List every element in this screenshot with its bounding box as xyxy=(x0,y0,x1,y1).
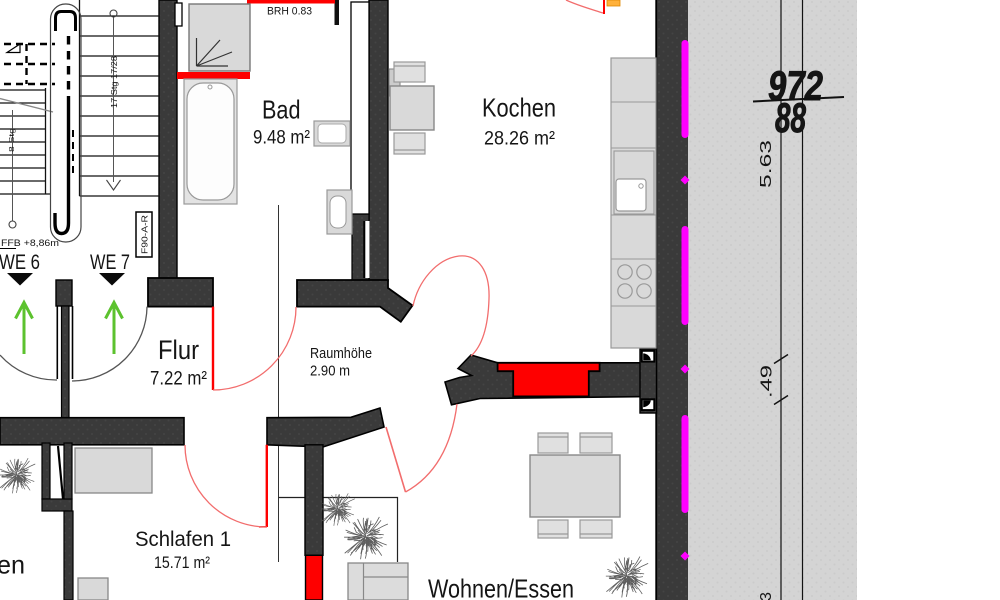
svg-text:.49: .49 xyxy=(759,365,776,398)
svg-text:Flur: Flur xyxy=(158,335,199,365)
svg-text:17 Stg 17/28: 17 Stg 17/28 xyxy=(110,55,119,108)
svg-text:9.48 m²: 9.48 m² xyxy=(253,128,310,149)
svg-text:BRH 0.83: BRH 0.83 xyxy=(267,6,312,18)
svg-text:en: en xyxy=(0,550,25,580)
svg-text:Bad: Bad xyxy=(262,95,301,125)
svg-text:F90-A-R: F90-A-R xyxy=(140,215,150,254)
svg-text:WE 6: WE 6 xyxy=(0,250,40,274)
svg-text:15.71 m²: 15.71 m² xyxy=(154,553,210,572)
svg-text:FFB +8,86m: FFB +8,86m xyxy=(1,238,59,249)
svg-text:28.26 m²: 28.26 m² xyxy=(484,129,555,150)
svg-text:88: 88 xyxy=(775,94,806,141)
svg-text:5.63: 5.63 xyxy=(758,140,775,188)
svg-text:WE 7: WE 7 xyxy=(90,250,130,274)
svg-text:Kochen: Kochen xyxy=(482,93,556,123)
svg-text:2.90 m: 2.90 m xyxy=(310,363,350,380)
svg-text:Schlafen 1: Schlafen 1 xyxy=(135,528,231,551)
svg-text:7.22 m²: 7.22 m² xyxy=(150,369,207,390)
svg-text:Wohnen/Essen: Wohnen/Essen xyxy=(428,574,574,600)
svg-text:8 Stg: 8 Stg xyxy=(7,128,16,152)
svg-text:3: 3 xyxy=(758,592,775,600)
svg-text:Raumhöhe: Raumhöhe xyxy=(310,345,372,362)
